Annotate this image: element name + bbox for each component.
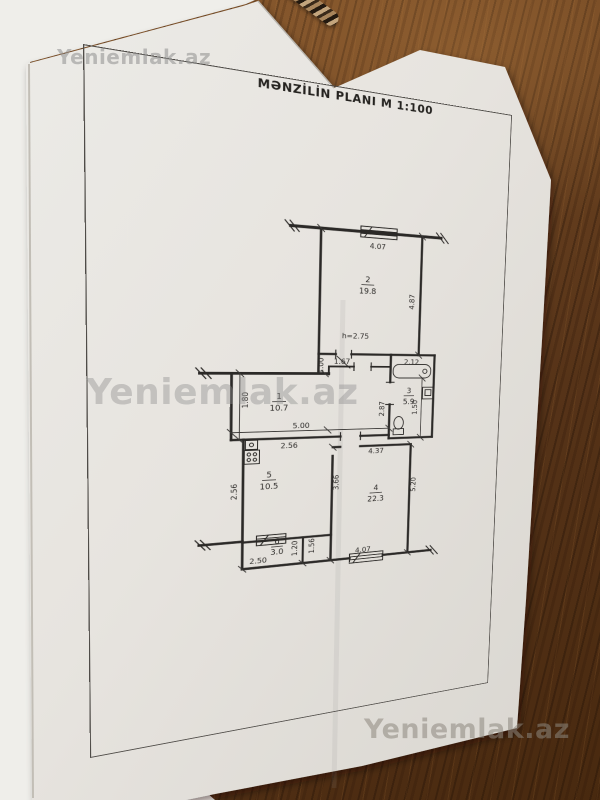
toilet-icon	[393, 416, 404, 434]
dim-lobby-height: 1.56	[308, 538, 317, 554]
room5-area: 10.5	[260, 482, 279, 492]
room6-number: 6	[274, 537, 279, 546]
dim-top-width: 4.07	[370, 242, 386, 251]
dim-bottom-width: 4.07	[355, 546, 371, 555]
room4-number: 4	[373, 484, 378, 493]
dim-bath-inner: 1.50	[411, 400, 419, 415]
dim-bath-width: 2.12	[404, 359, 419, 367]
room5-number: 5	[266, 471, 271, 480]
stove-icon	[244, 450, 259, 464]
dim-room4-top: 4.37	[368, 447, 384, 455]
ceiling-height-note: h=2.75	[342, 332, 369, 341]
watermark-center: Yeniemlak.az	[86, 372, 359, 413]
dim-room2-right: 4.87	[408, 294, 416, 310]
dim-room6-right: 1.20	[291, 540, 300, 556]
room4-area: 22.3	[367, 494, 384, 503]
dim-hall-width: 5.00	[292, 422, 309, 430]
room2-number: 2	[365, 276, 370, 285]
room6-area: 3.0	[270, 547, 283, 557]
dim-kitchen-right: 3.66	[332, 475, 341, 491]
dim-room4-right: 5.20	[410, 477, 418, 492]
watermark-top-left: Yeniemlak.az	[57, 45, 211, 69]
sink-unit-icon	[422, 387, 433, 399]
room3-number: 3	[407, 387, 412, 395]
dim-nook-width: 1.67	[334, 358, 351, 366]
dim-room6-width: 2.50	[249, 557, 267, 567]
dim-kitchen-top: 2.56	[280, 442, 297, 451]
dim-bath-left: 2.87	[378, 401, 386, 416]
room-number-underlines	[261, 279, 417, 548]
dim-kitchen-left: 2.56	[230, 484, 239, 501]
kitchen-sink-icon	[245, 440, 257, 450]
room2-area: 19.8	[359, 287, 376, 297]
watermark-bottom-right: Yeniemlak.az	[364, 714, 570, 745]
